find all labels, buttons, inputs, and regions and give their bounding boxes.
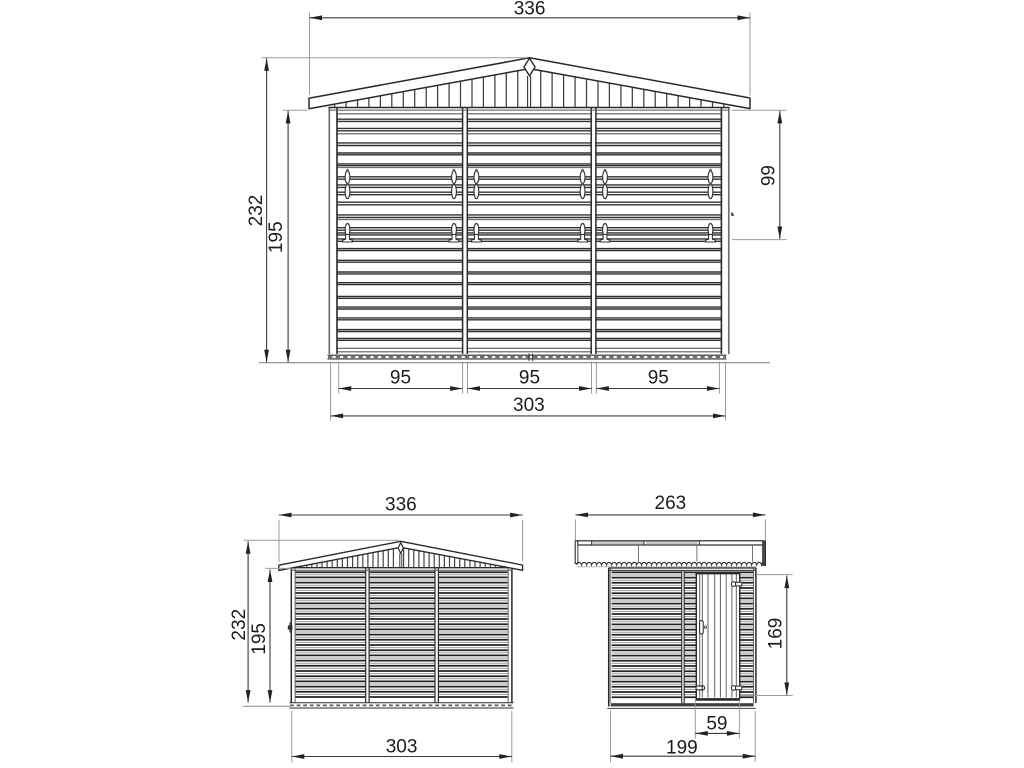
svg-text:232: 232 [229, 609, 250, 641]
svg-text:195: 195 [249, 623, 270, 655]
svg-text:199: 199 [666, 737, 698, 758]
svg-text:336: 336 [514, 0, 546, 19]
svg-text:95: 95 [519, 368, 540, 389]
svg-text:232: 232 [246, 195, 267, 227]
svg-text:195: 195 [266, 221, 287, 253]
svg-text:169: 169 [766, 618, 787, 650]
svg-text:336: 336 [385, 495, 417, 516]
svg-text:303: 303 [513, 395, 545, 416]
svg-text:99: 99 [759, 165, 780, 186]
svg-text:263: 263 [655, 493, 687, 514]
svg-text:95: 95 [390, 368, 411, 389]
svg-text:95: 95 [648, 368, 669, 389]
svg-text:59: 59 [706, 714, 727, 735]
svg-text:303: 303 [386, 736, 418, 757]
